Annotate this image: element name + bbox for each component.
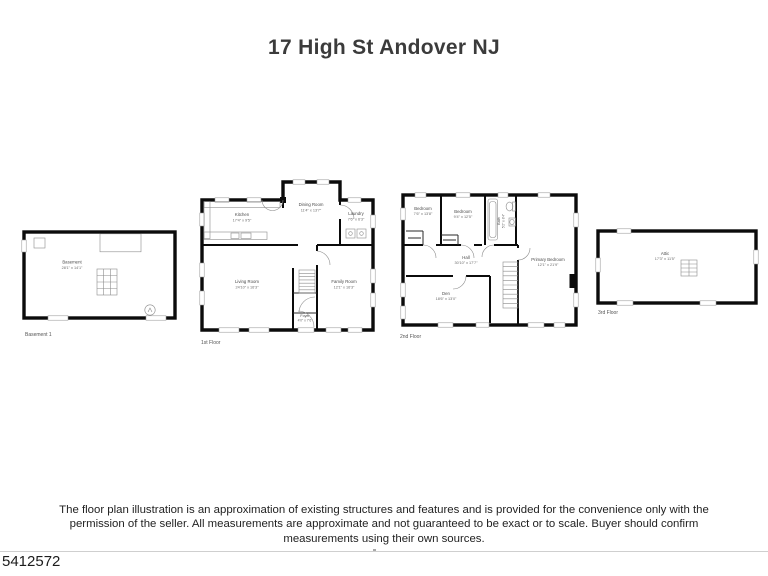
- stairs-icon: [97, 269, 117, 295]
- door-arc: [453, 276, 466, 289]
- room-label: Living Room: [235, 279, 259, 284]
- room-label: Hall: [462, 255, 469, 260]
- floor-name-label: Basement 1: [25, 332, 52, 338]
- walls: [202, 182, 373, 330]
- room-label: Kitchen: [235, 212, 250, 217]
- listing-id: 5412572: [2, 553, 60, 570]
- page-title: 17 High St Andover NJ: [0, 36, 768, 60]
- room-dims: 5'2" x 8'4": [502, 213, 506, 228]
- floor-name-label: 1st Floor: [201, 340, 221, 346]
- floor-name-label: 3rd Floor: [598, 310, 618, 316]
- first-floorplan: Kitchen 17'4" x 9'5" Dining Room 11'4" x…: [195, 175, 385, 347]
- windows: [596, 229, 758, 305]
- stairs-icon: [299, 270, 315, 293]
- laundry-appliances-icon: [346, 229, 366, 238]
- room-label: Bedroom: [454, 209, 472, 214]
- chimney-icon: [570, 274, 577, 288]
- room-label: Bedroom: [414, 206, 432, 211]
- doors: [423, 245, 530, 289]
- room-dims: 24'10" x 16'3": [236, 286, 260, 290]
- sink-icon: [509, 218, 516, 226]
- room-dims: 7'6" x 13'8": [414, 212, 433, 216]
- toilet-icon: [506, 202, 515, 211]
- room-label: Family Room: [331, 279, 357, 284]
- stairs-icon: [503, 262, 518, 308]
- room-dims: 17'3" x 11'5": [655, 257, 676, 261]
- room-dims: 17'4" x 9'5": [233, 219, 252, 223]
- room-dims: 30'10" x 17'7": [455, 261, 479, 265]
- second-floorplan: Bedroom 7'6" x 13'8" Bedroom 9'4" x 12'5…: [398, 188, 583, 340]
- door-arc: [518, 248, 530, 260]
- footer-divider: [0, 551, 768, 552]
- room-dims: 4'0" x 7'6": [298, 319, 314, 323]
- stairs-icon: [681, 260, 697, 276]
- room-label: Basement: [62, 260, 82, 265]
- floor-name-label: 2nd Floor: [400, 334, 421, 340]
- bath-label-group: Bath 5'2" x 8'4": [497, 213, 506, 228]
- room-label: Laundry: [348, 211, 364, 216]
- door-arc: [423, 245, 436, 258]
- room-label: Primary Bedroom: [531, 257, 565, 262]
- room-dims: 12'1" x 16'3": [334, 286, 355, 290]
- floorplan-page: 17 High St Andover NJ Basement 28'1" x 1…: [0, 0, 768, 576]
- disclaimer-text: The floor plan illustration is an approx…: [34, 503, 734, 546]
- windows: [22, 240, 166, 320]
- room-dims: 9'4" x 12'5": [454, 215, 473, 219]
- room-dims: 12'1" x 21'9": [538, 263, 559, 267]
- room-label: Attic: [661, 251, 670, 256]
- closet-door-arc: [299, 297, 315, 313]
- utility-box-icon: [34, 238, 45, 248]
- room-label: Bath: [497, 217, 501, 224]
- basement-floorplan: Basement 28'1" x 14'1" Basement 1: [20, 225, 180, 340]
- room-label: Den: [442, 291, 450, 296]
- door-arc: [482, 245, 494, 257]
- attic-floorplan: Attic 17'3" x 11'5" 3rd Floor: [595, 228, 760, 318]
- room-dims: 11'4" x 13'7": [301, 209, 322, 213]
- windows: [200, 180, 375, 332]
- stove-icon: [241, 233, 251, 239]
- room-label: Foyer: [300, 314, 310, 318]
- room-dims: 18'6" x 13'0": [436, 297, 457, 301]
- door-arc: [317, 251, 330, 265]
- room-dims: 28'1" x 14'1": [62, 266, 83, 270]
- fixtures: [34, 234, 155, 315]
- sink-icon: [231, 233, 239, 239]
- room-label: Dining Room: [299, 202, 324, 207]
- shelf-icon: [100, 234, 141, 252]
- room-dims: 7'6" x 6'3": [348, 218, 365, 222]
- water-heater-icon: [145, 305, 155, 315]
- walls: [598, 231, 756, 303]
